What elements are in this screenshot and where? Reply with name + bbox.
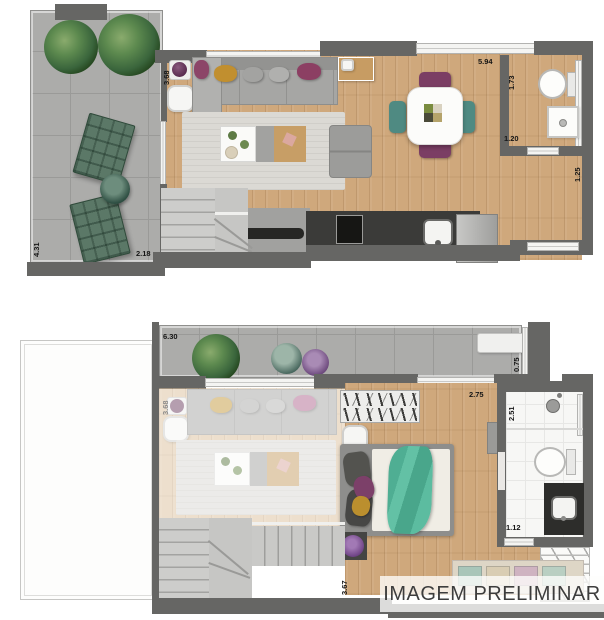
hanger-rail [343, 408, 417, 421]
ghost-sofa [187, 389, 337, 435]
faucet [561, 516, 566, 521]
shower-control [557, 393, 562, 398]
ghost-pillow [210, 397, 232, 413]
ghost-pillow [293, 395, 316, 411]
dim-void-living: 3.68 [162, 400, 170, 415]
dim-lavabo-width: 1.20 [504, 135, 519, 143]
dim-terrace-depth: 4.31 [33, 242, 41, 257]
bedroom-pouf [342, 535, 364, 557]
right-wall [583, 381, 593, 547]
dim-lavabo-depth: 1.73 [508, 75, 516, 90]
preliminary-image-banner: IMAGEM PRELIMINAR [380, 576, 604, 612]
bed-blanket [386, 445, 433, 534]
wardrobe [340, 390, 420, 423]
ghost-plant [221, 457, 230, 466]
dim-balcony-width: 6.30 [163, 333, 178, 341]
dim-living-width: 5.94 [478, 58, 493, 66]
toilet-tank [566, 449, 576, 475]
bathroom-door [498, 452, 505, 490]
floorplan-image: 4.31 2.18 [0, 0, 604, 620]
hanger-rail [343, 393, 417, 406]
bottom-wall [152, 598, 392, 614]
ghost-plant [233, 466, 242, 475]
shower-head [546, 399, 560, 413]
ghost-armchair [163, 416, 189, 442]
door [504, 538, 534, 546]
dim-living-depth: 3.68 [163, 70, 171, 85]
ghost-coffee-table [250, 452, 267, 486]
ghost-coffee-table [214, 452, 250, 486]
stair-edge [252, 522, 345, 525]
dim-bathroom-depth: 2.51 [508, 406, 516, 421]
dim-balcony-depth: 0.75 [513, 357, 521, 372]
toilet [534, 447, 566, 477]
ghost-pillow [266, 399, 285, 413]
ghost-vase [170, 399, 184, 413]
dim-bedroom-width: 2.75 [469, 391, 484, 399]
wall [497, 381, 593, 392]
stair-treads [252, 526, 345, 566]
second-floor-plan: 3.68 [0, 0, 604, 620]
dim-bedroom-depth: 3.67 [341, 580, 349, 595]
shower-glass [506, 428, 583, 430]
dim-bathroom-width: 1.12 [506, 524, 521, 532]
dim-terrace-width: 2.18 [136, 250, 151, 258]
ghost-pillow [240, 399, 259, 413]
preliminary-image-text: IMAGEM PRELIMINAR [383, 583, 600, 606]
dim-entry-side: 1.25 [574, 167, 582, 182]
stair-treads [159, 518, 209, 598]
